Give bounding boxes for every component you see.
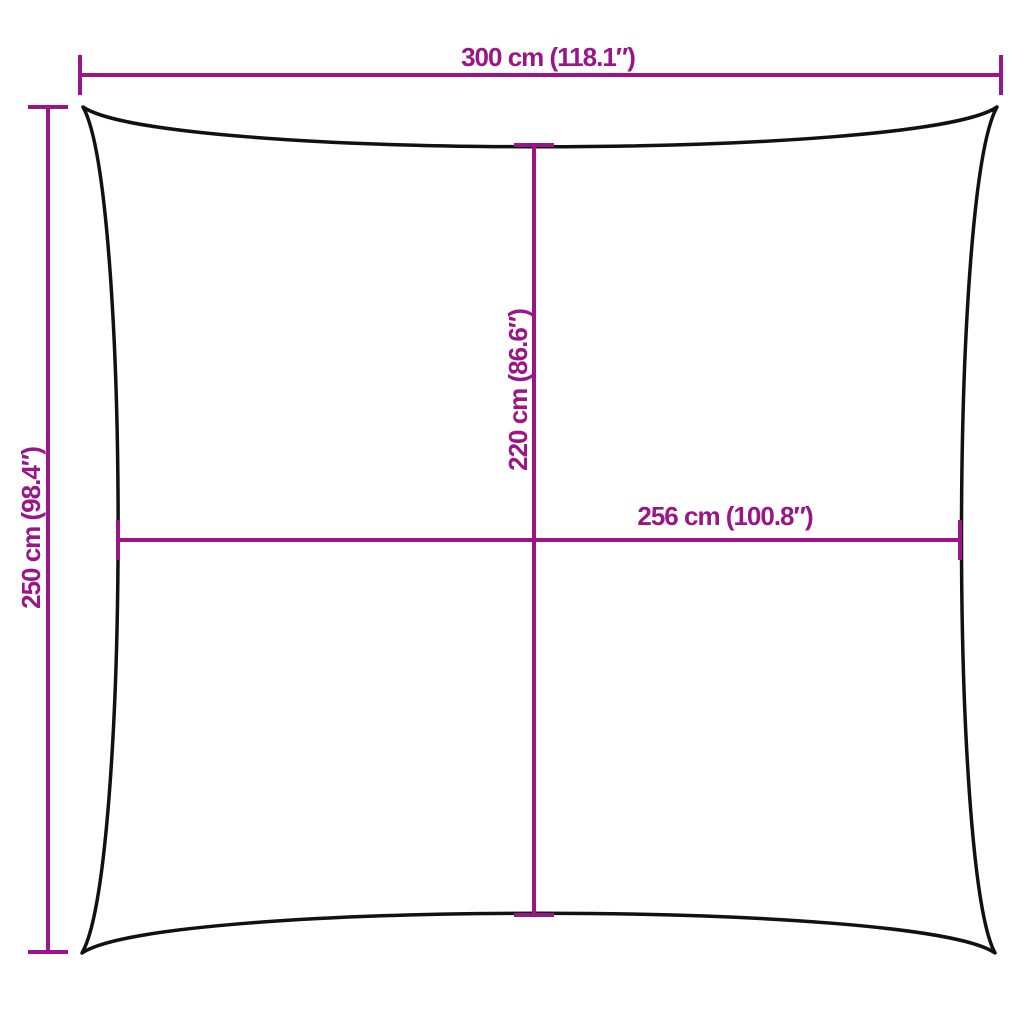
inner-width-dimension	[118, 520, 960, 560]
dimension-diagram-canvas: 300 cm (118.1″) 250 cm (98.4″) 220 cm (8…	[0, 0, 1024, 1024]
inner-width-label: 256 cm (100.8″)	[637, 501, 813, 531]
inner-height-label: 220 cm (86.6″)	[503, 309, 533, 471]
sail-outline	[82, 107, 997, 953]
dimension-labels: 300 cm (118.1″) 250 cm (98.4″) 220 cm (8…	[16, 42, 813, 609]
left-height-label: 250 cm (98.4″)	[16, 447, 46, 609]
dimension-diagram: 300 cm (118.1″) 250 cm (98.4″) 220 cm (8…	[0, 0, 1024, 1024]
top-width-label: 300 cm (118.1″)	[461, 42, 635, 72]
inner-height-dimension	[514, 145, 554, 915]
dimension-lines	[28, 55, 1001, 952]
